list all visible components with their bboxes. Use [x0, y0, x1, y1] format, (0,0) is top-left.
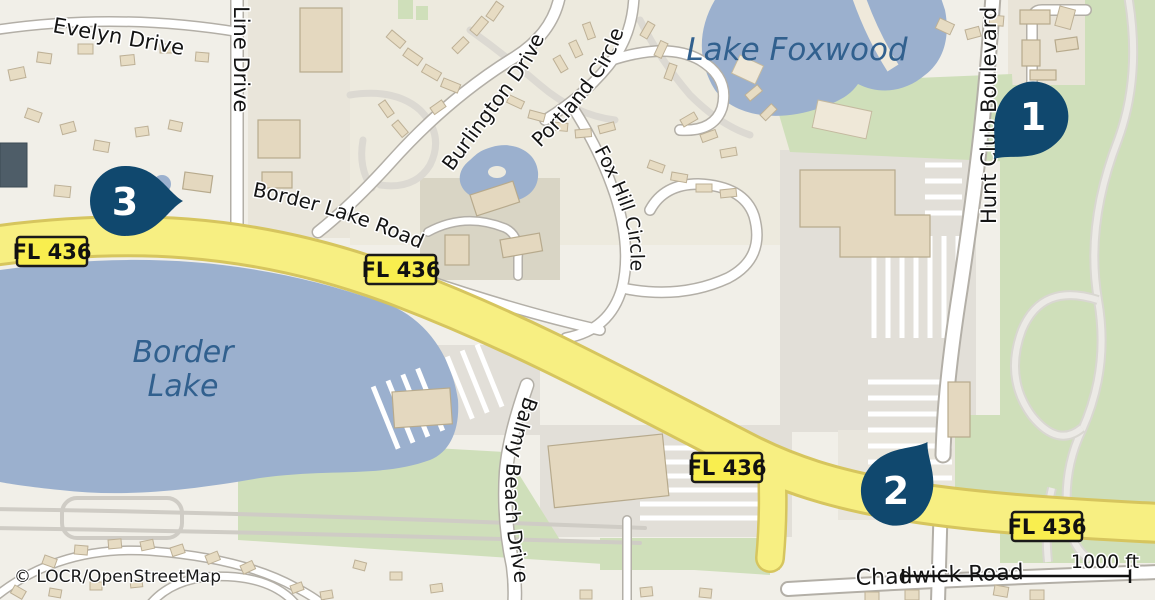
border-lake-label-line2: Lake	[148, 369, 219, 404]
marker-2-number: 2	[883, 469, 909, 513]
svg-text:FL 436: FL 436	[13, 240, 92, 264]
store-building	[548, 434, 669, 508]
border-lake-label-line1: Border	[132, 335, 235, 370]
marker-3-number: 3	[112, 180, 138, 224]
svg-text:FL 436: FL 436	[1008, 515, 1087, 539]
route-shield-3: FL 436	[688, 453, 767, 482]
marker-1-number: 1	[1020, 95, 1046, 139]
pond-island	[488, 166, 506, 178]
route-shield-4: FL 436	[1008, 512, 1087, 541]
attribution: © LOCR/OpenStreetMap	[14, 567, 221, 587]
svg-text:FL 436: FL 436	[688, 456, 767, 480]
apartment-dark	[0, 143, 27, 187]
svg-text:FL 436: FL 436	[362, 258, 441, 282]
route-shield-2: FL 436	[362, 255, 441, 284]
street-label-line: Line Drive	[229, 6, 253, 112]
route-shield-1: FL 436	[13, 237, 92, 266]
lake-foxwood-label: Lake Foxwood	[686, 32, 908, 68]
map-canvas[interactable]: Lake Foxwood Border Lake Evelyn Drive Li…	[0, 0, 1155, 600]
scale-label: 1000 ft	[1071, 551, 1139, 573]
map-viewport[interactable]: Lake Foxwood Border Lake Evelyn Drive Li…	[0, 0, 1155, 600]
